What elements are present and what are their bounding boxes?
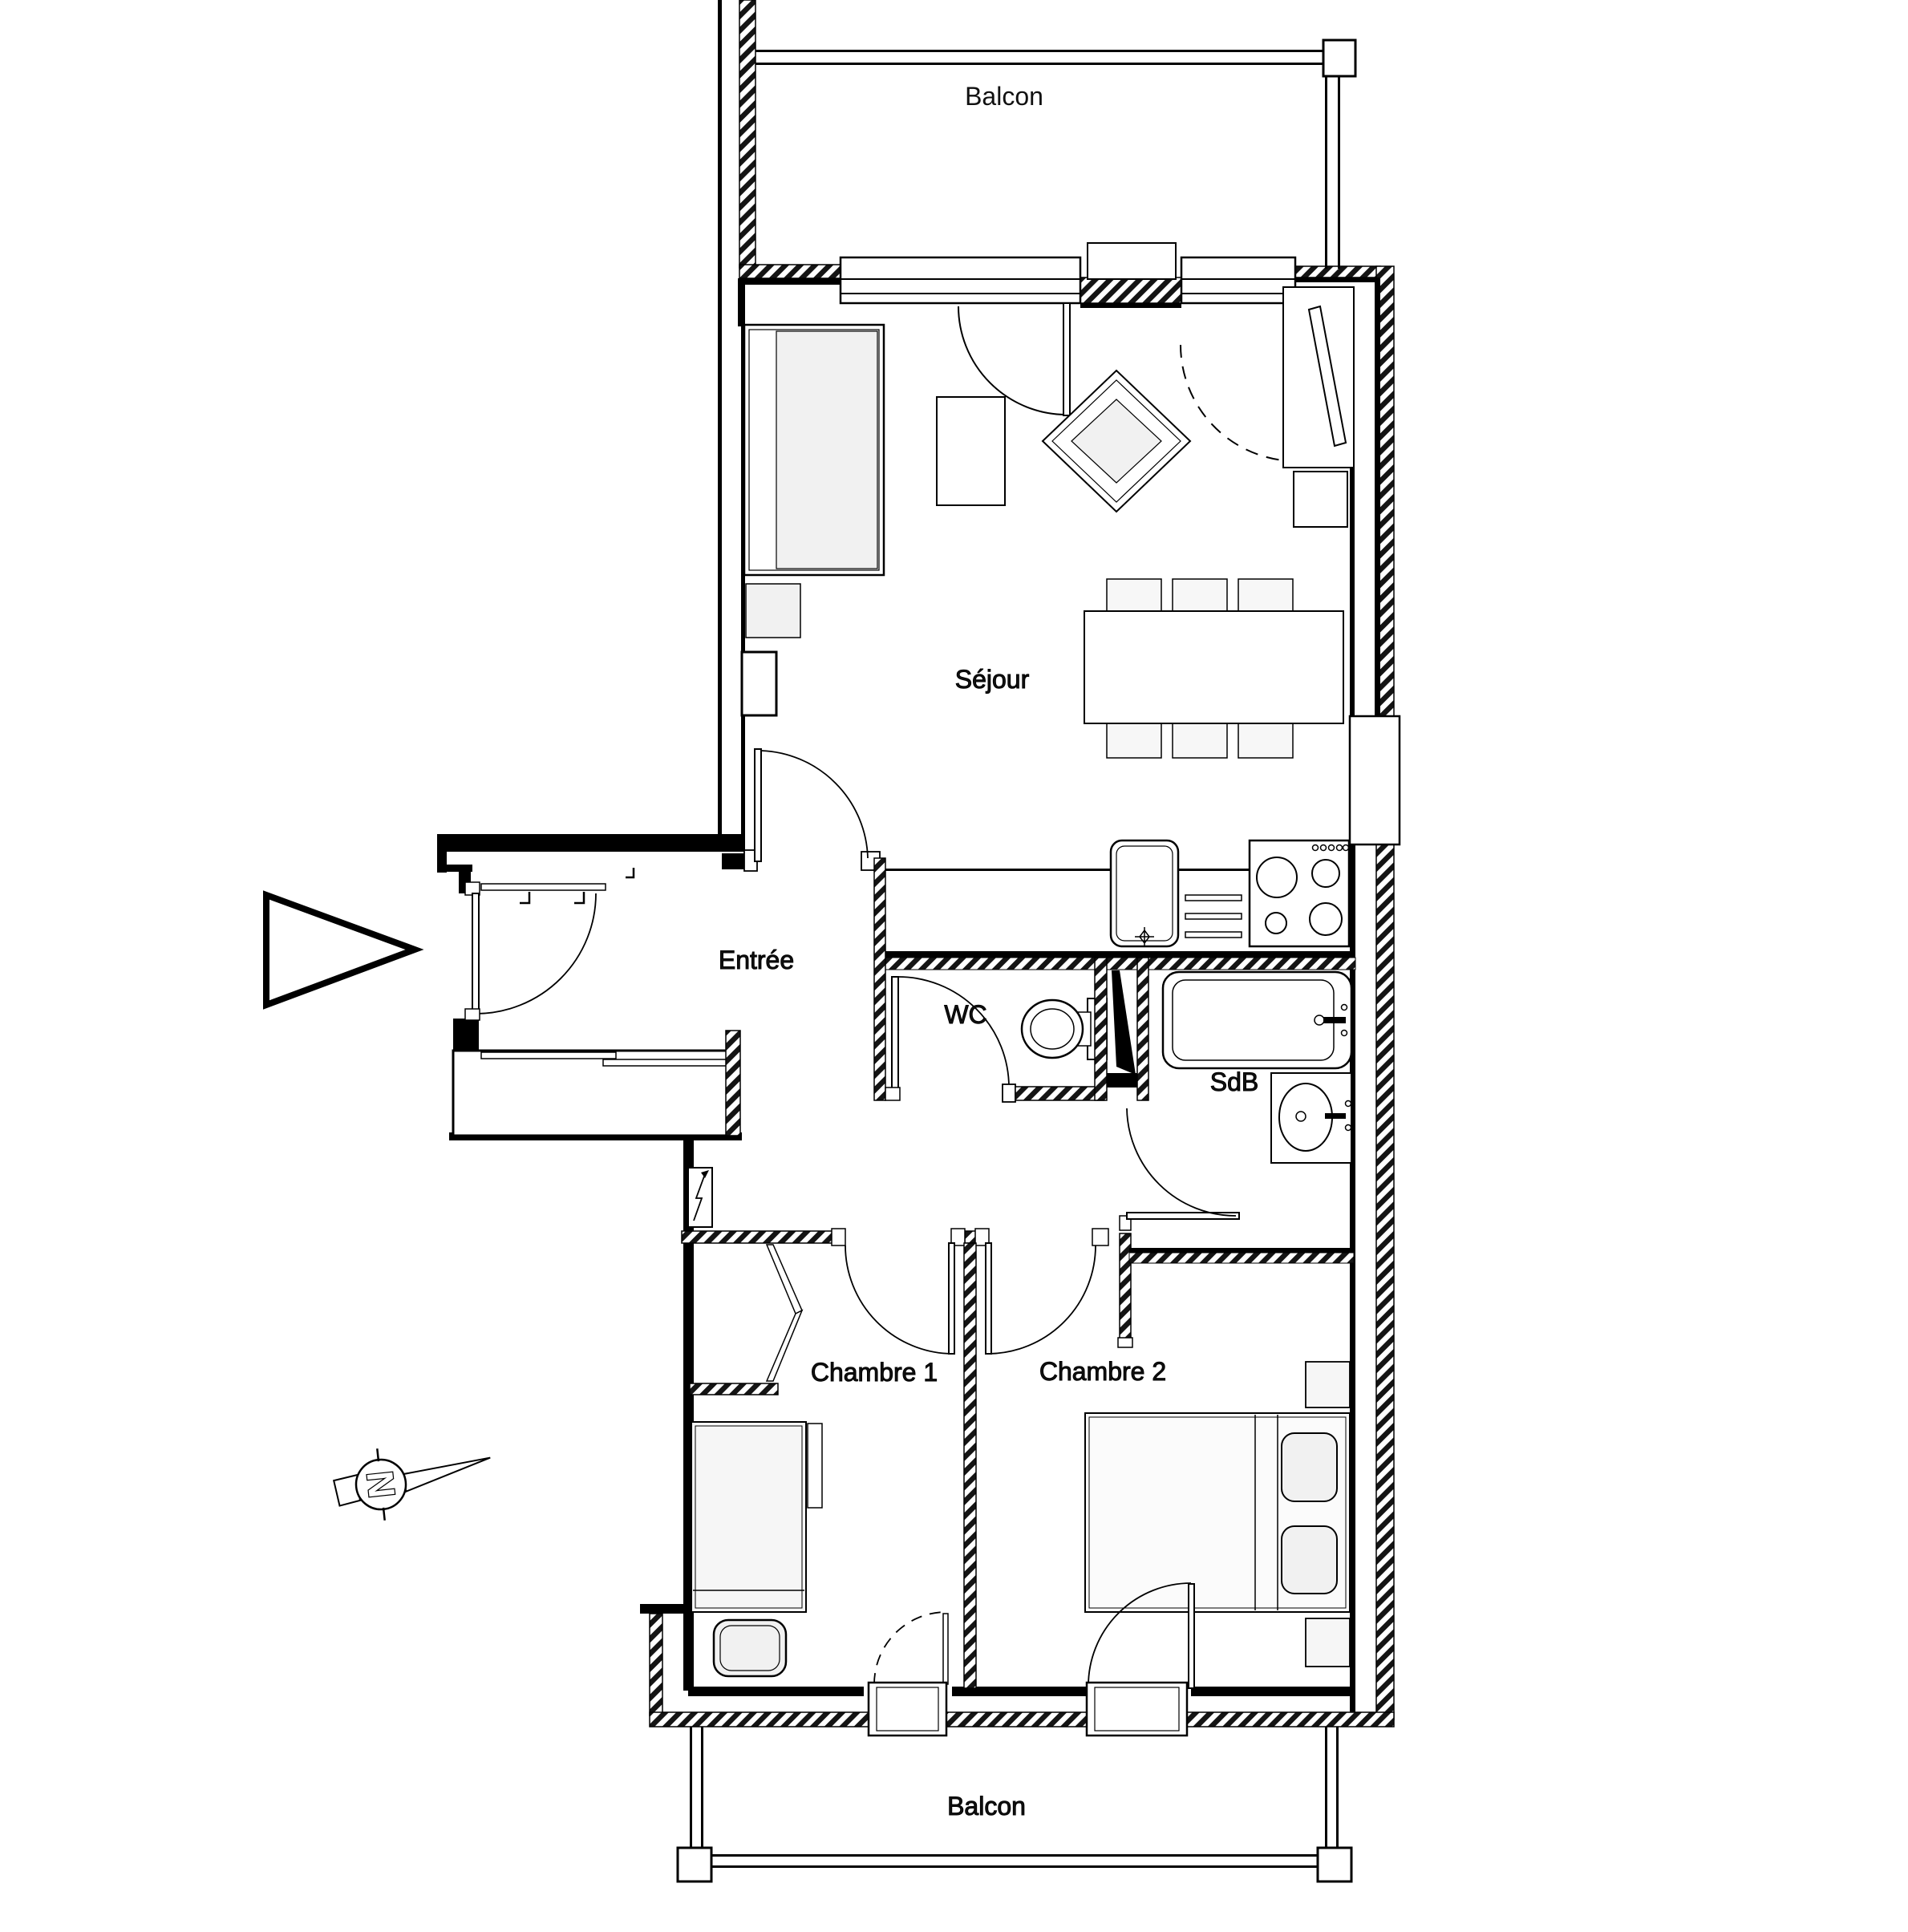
pillow-1 bbox=[1282, 1433, 1337, 1501]
kitchen-wc-wall-hatch bbox=[884, 958, 1355, 970]
stove bbox=[1250, 840, 1349, 946]
wc-room: WC bbox=[874, 858, 1148, 1102]
balcony-top-left-wall bbox=[739, 0, 756, 268]
right-wall-inner-lower bbox=[1350, 844, 1355, 1719]
bathtub bbox=[1163, 972, 1351, 1068]
bottom-left-step-hatch bbox=[650, 1614, 662, 1715]
entry-top-wall bbox=[437, 834, 745, 852]
coffee-table bbox=[937, 397, 1005, 505]
wardrobe-folding-doors bbox=[690, 1245, 802, 1395]
toilet bbox=[1022, 998, 1107, 1059]
balcony-planter bbox=[1088, 243, 1176, 279]
kitchen-door bbox=[1350, 716, 1400, 844]
floor-cabinet bbox=[742, 652, 776, 715]
building-edge-line bbox=[718, 0, 722, 840]
bedroom1-label: Chambre 1 bbox=[811, 1358, 938, 1387]
media-unit bbox=[1294, 472, 1347, 527]
bedroom1: Chambre 1 bbox=[688, 1168, 948, 1684]
railing-post-right bbox=[1318, 1848, 1351, 1881]
bathroom: SdB bbox=[1120, 972, 1351, 1230]
nightstand-bottom bbox=[1306, 1618, 1350, 1667]
compass-needle bbox=[403, 1458, 493, 1492]
bedroom1-balcony-door bbox=[874, 1612, 948, 1684]
tv-console bbox=[1283, 287, 1354, 527]
bed-single bbox=[691, 1422, 806, 1612]
floor-plan-page: Balcon bbox=[0, 0, 1908, 1932]
wall-between-windows bbox=[1080, 277, 1181, 303]
bathroom-door bbox=[1120, 1108, 1239, 1230]
entrance-arrow-icon bbox=[266, 895, 415, 1005]
sejour: Séjour bbox=[742, 287, 1354, 758]
bottom-wall-hatch bbox=[650, 1712, 1394, 1727]
sejour-label: Séjour bbox=[955, 665, 1030, 694]
railing-corner-post bbox=[1323, 40, 1355, 76]
balcony-top: Balcon bbox=[756, 40, 1355, 269]
wc-door bbox=[885, 977, 1009, 1100]
entry-closet bbox=[453, 1031, 740, 1136]
bedroom2: Chambre 2 bbox=[1039, 1357, 1350, 1688]
bathroom-label: SdB bbox=[1210, 1067, 1258, 1096]
side-table bbox=[746, 584, 800, 638]
pillow-2 bbox=[1282, 1526, 1337, 1594]
wc-bottom-wall bbox=[1015, 1087, 1104, 1100]
window-swing-dashed bbox=[1181, 345, 1297, 461]
bedroom1-door bbox=[845, 1243, 954, 1354]
wc-label: WC bbox=[944, 1000, 986, 1029]
bedroom-partition-wall bbox=[964, 1243, 976, 1688]
balcony-bottom-label: Balcon bbox=[947, 1792, 1026, 1821]
pouf bbox=[714, 1620, 786, 1676]
bedside-shelf bbox=[808, 1424, 822, 1508]
north-compass-icon: N bbox=[331, 1437, 496, 1525]
bedroom2-label: Chambre 2 bbox=[1039, 1357, 1166, 1386]
balcony-corner-wall bbox=[739, 265, 841, 278]
dish-rack bbox=[1185, 895, 1242, 938]
bed-double bbox=[1085, 1413, 1350, 1612]
closet-sliding-door-1 bbox=[481, 1052, 616, 1059]
balcony-door-box-2 bbox=[1087, 1683, 1187, 1736]
railing-post-left bbox=[678, 1848, 711, 1881]
window-balcony-door bbox=[841, 257, 1080, 303]
closet-sliding-door-2 bbox=[603, 1059, 727, 1066]
nightstand-top bbox=[1306, 1362, 1350, 1407]
window-right bbox=[1181, 257, 1295, 303]
technical-shaft bbox=[1095, 958, 1148, 1100]
electrical-panel bbox=[688, 1168, 712, 1227]
entry: Entrée bbox=[453, 749, 880, 1136]
sofa bbox=[744, 325, 884, 575]
balcony-top-label: Balcon bbox=[965, 82, 1043, 111]
washbasin bbox=[1271, 1073, 1351, 1163]
dining-table bbox=[1084, 611, 1343, 723]
kitchen bbox=[880, 840, 1355, 970]
bedroom2-door bbox=[986, 1243, 1096, 1354]
balcony-door-box-1 bbox=[869, 1683, 946, 1736]
entry-label: Entrée bbox=[719, 946, 794, 974]
coat-rack bbox=[481, 884, 606, 890]
floor-plan-svg: Balcon bbox=[0, 0, 1908, 1932]
wc-left-wall bbox=[874, 858, 885, 1100]
north-letter: N bbox=[359, 1469, 403, 1500]
entry-sejour-door bbox=[755, 749, 868, 861]
kitchen-sink bbox=[1111, 840, 1178, 946]
